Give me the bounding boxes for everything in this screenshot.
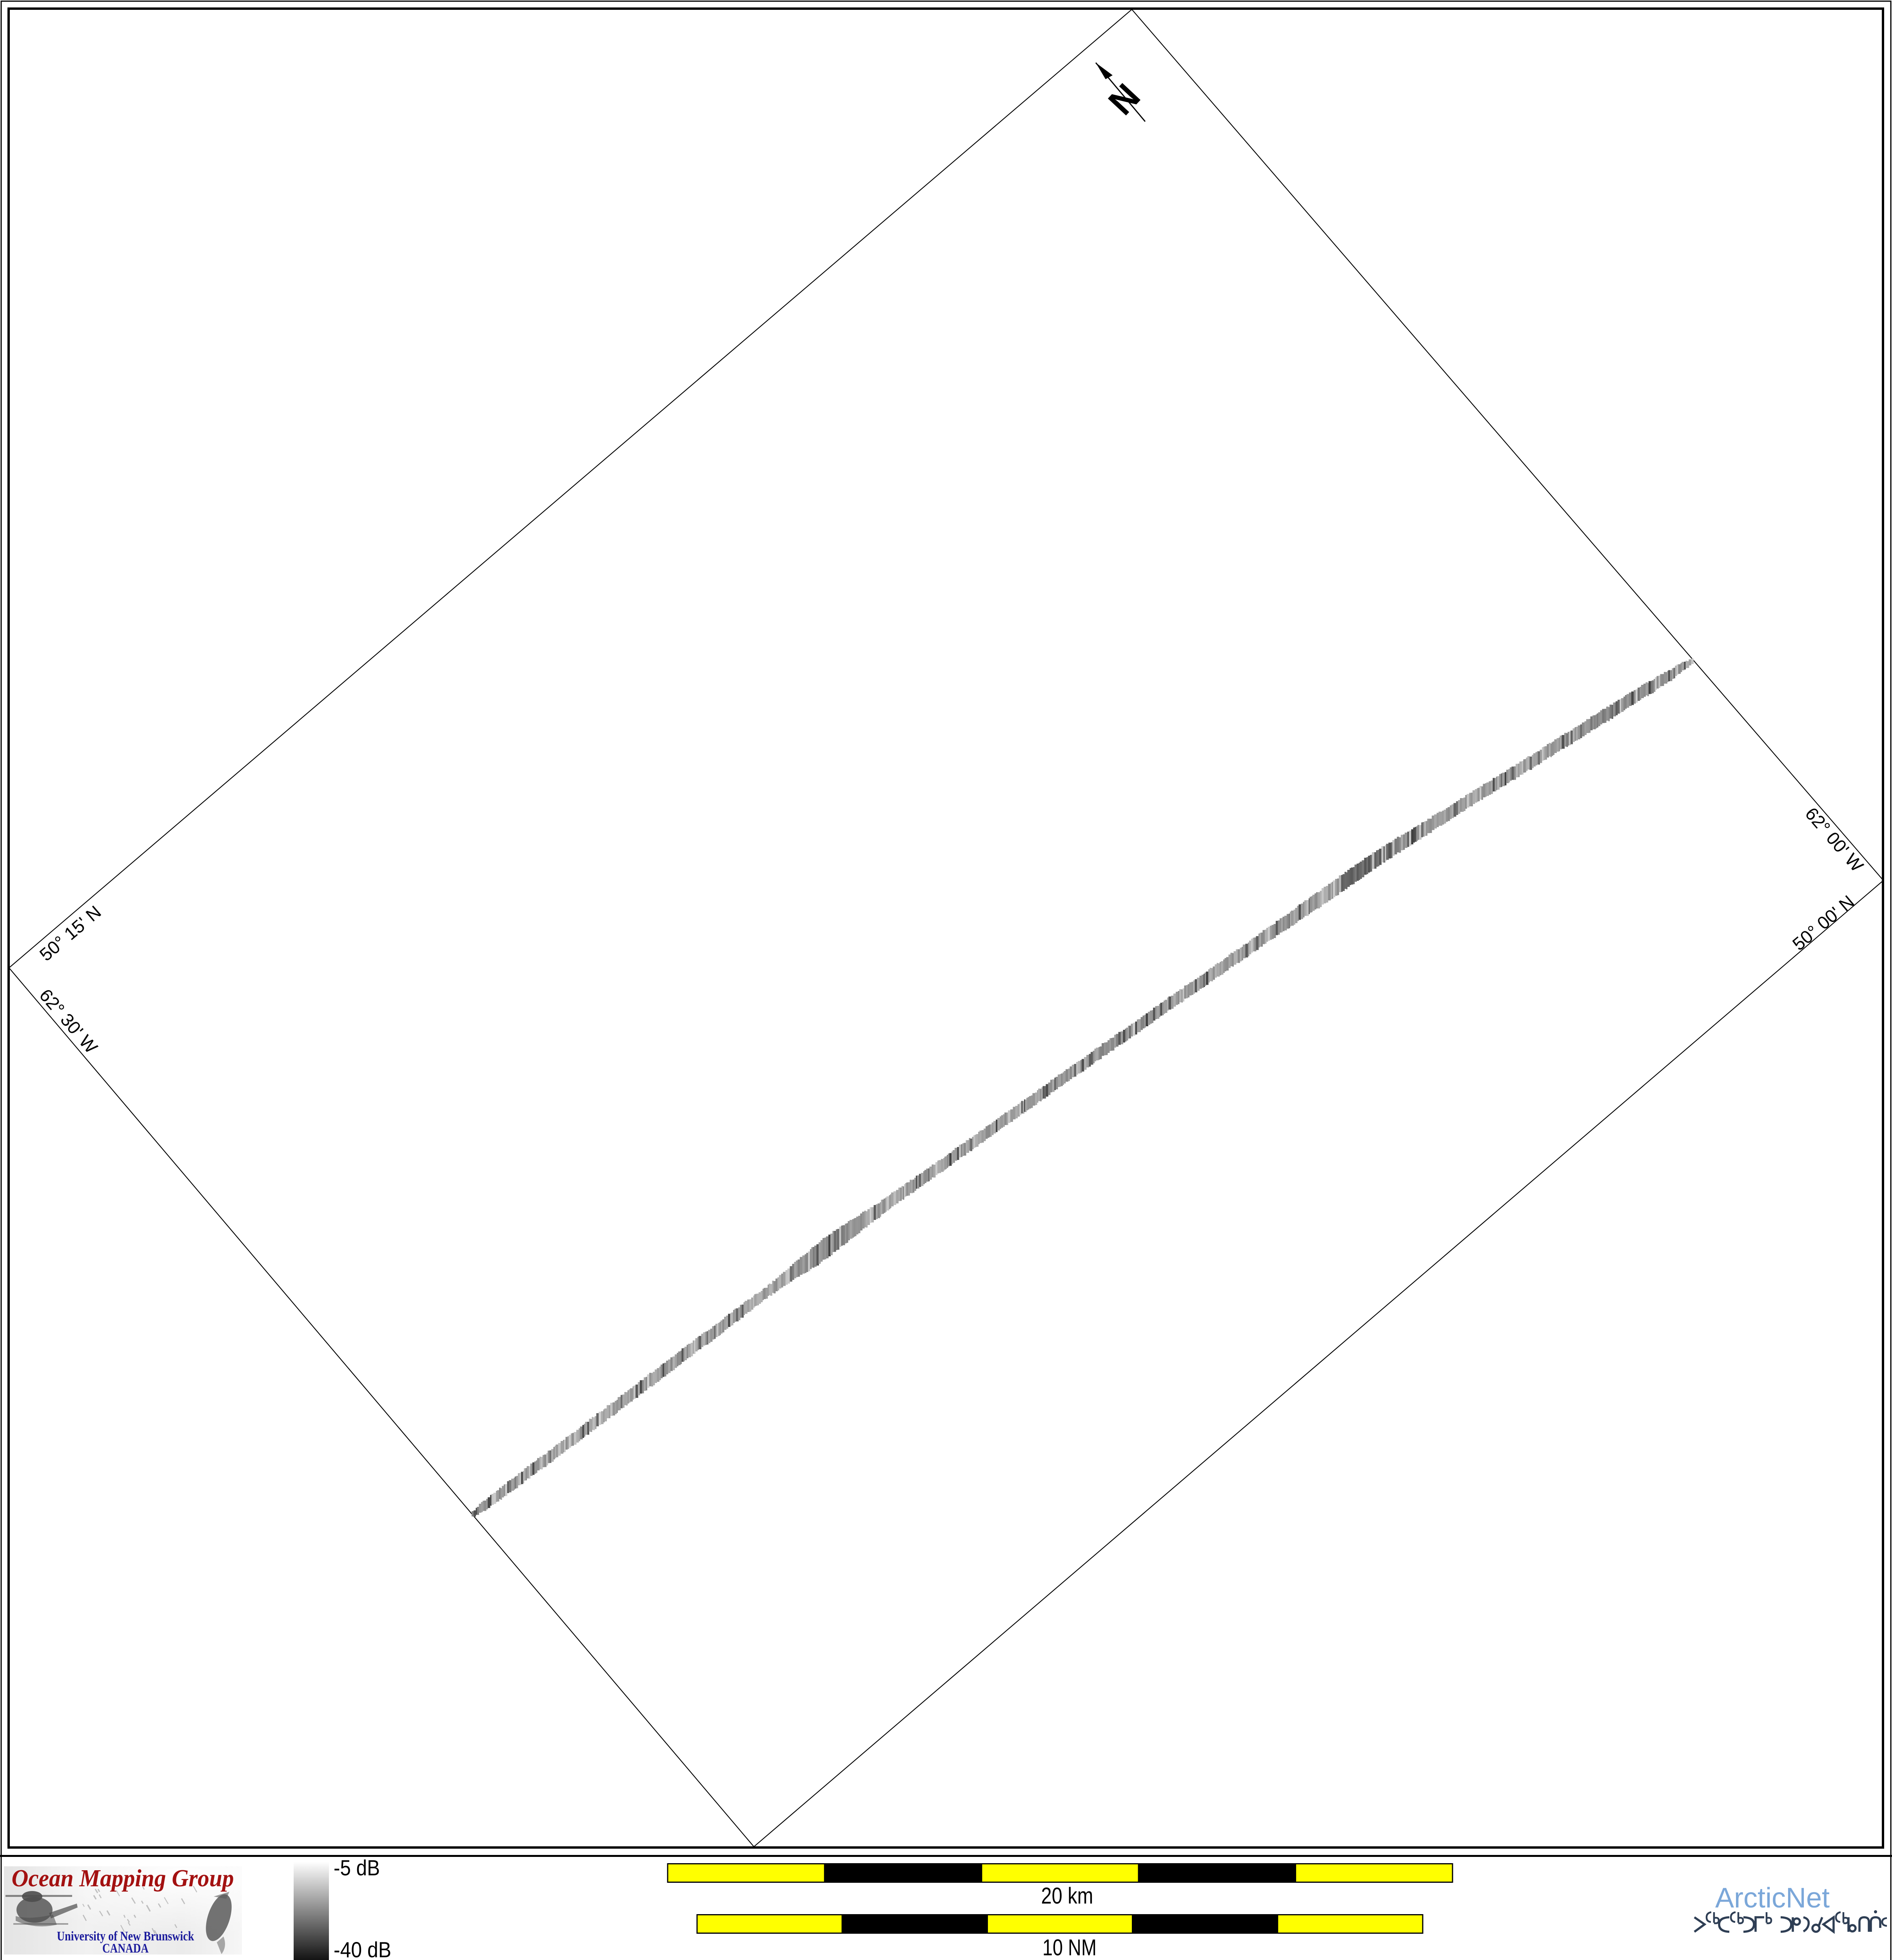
svg-text:-5 dB: -5 dB — [334, 1855, 380, 1880]
svg-text:Ocean Mapping Group: Ocean Mapping Group — [12, 1865, 234, 1892]
svg-text:-40 dB: -40 dB — [334, 1937, 391, 1960]
svg-text:10 NM: 10 NM — [1042, 1935, 1097, 1960]
svg-text:CANADA: CANADA — [102, 1941, 149, 1956]
svg-text:20 km: 20 km — [1041, 1883, 1093, 1909]
svg-text:ArcticNet: ArcticNet — [1715, 1882, 1830, 1914]
